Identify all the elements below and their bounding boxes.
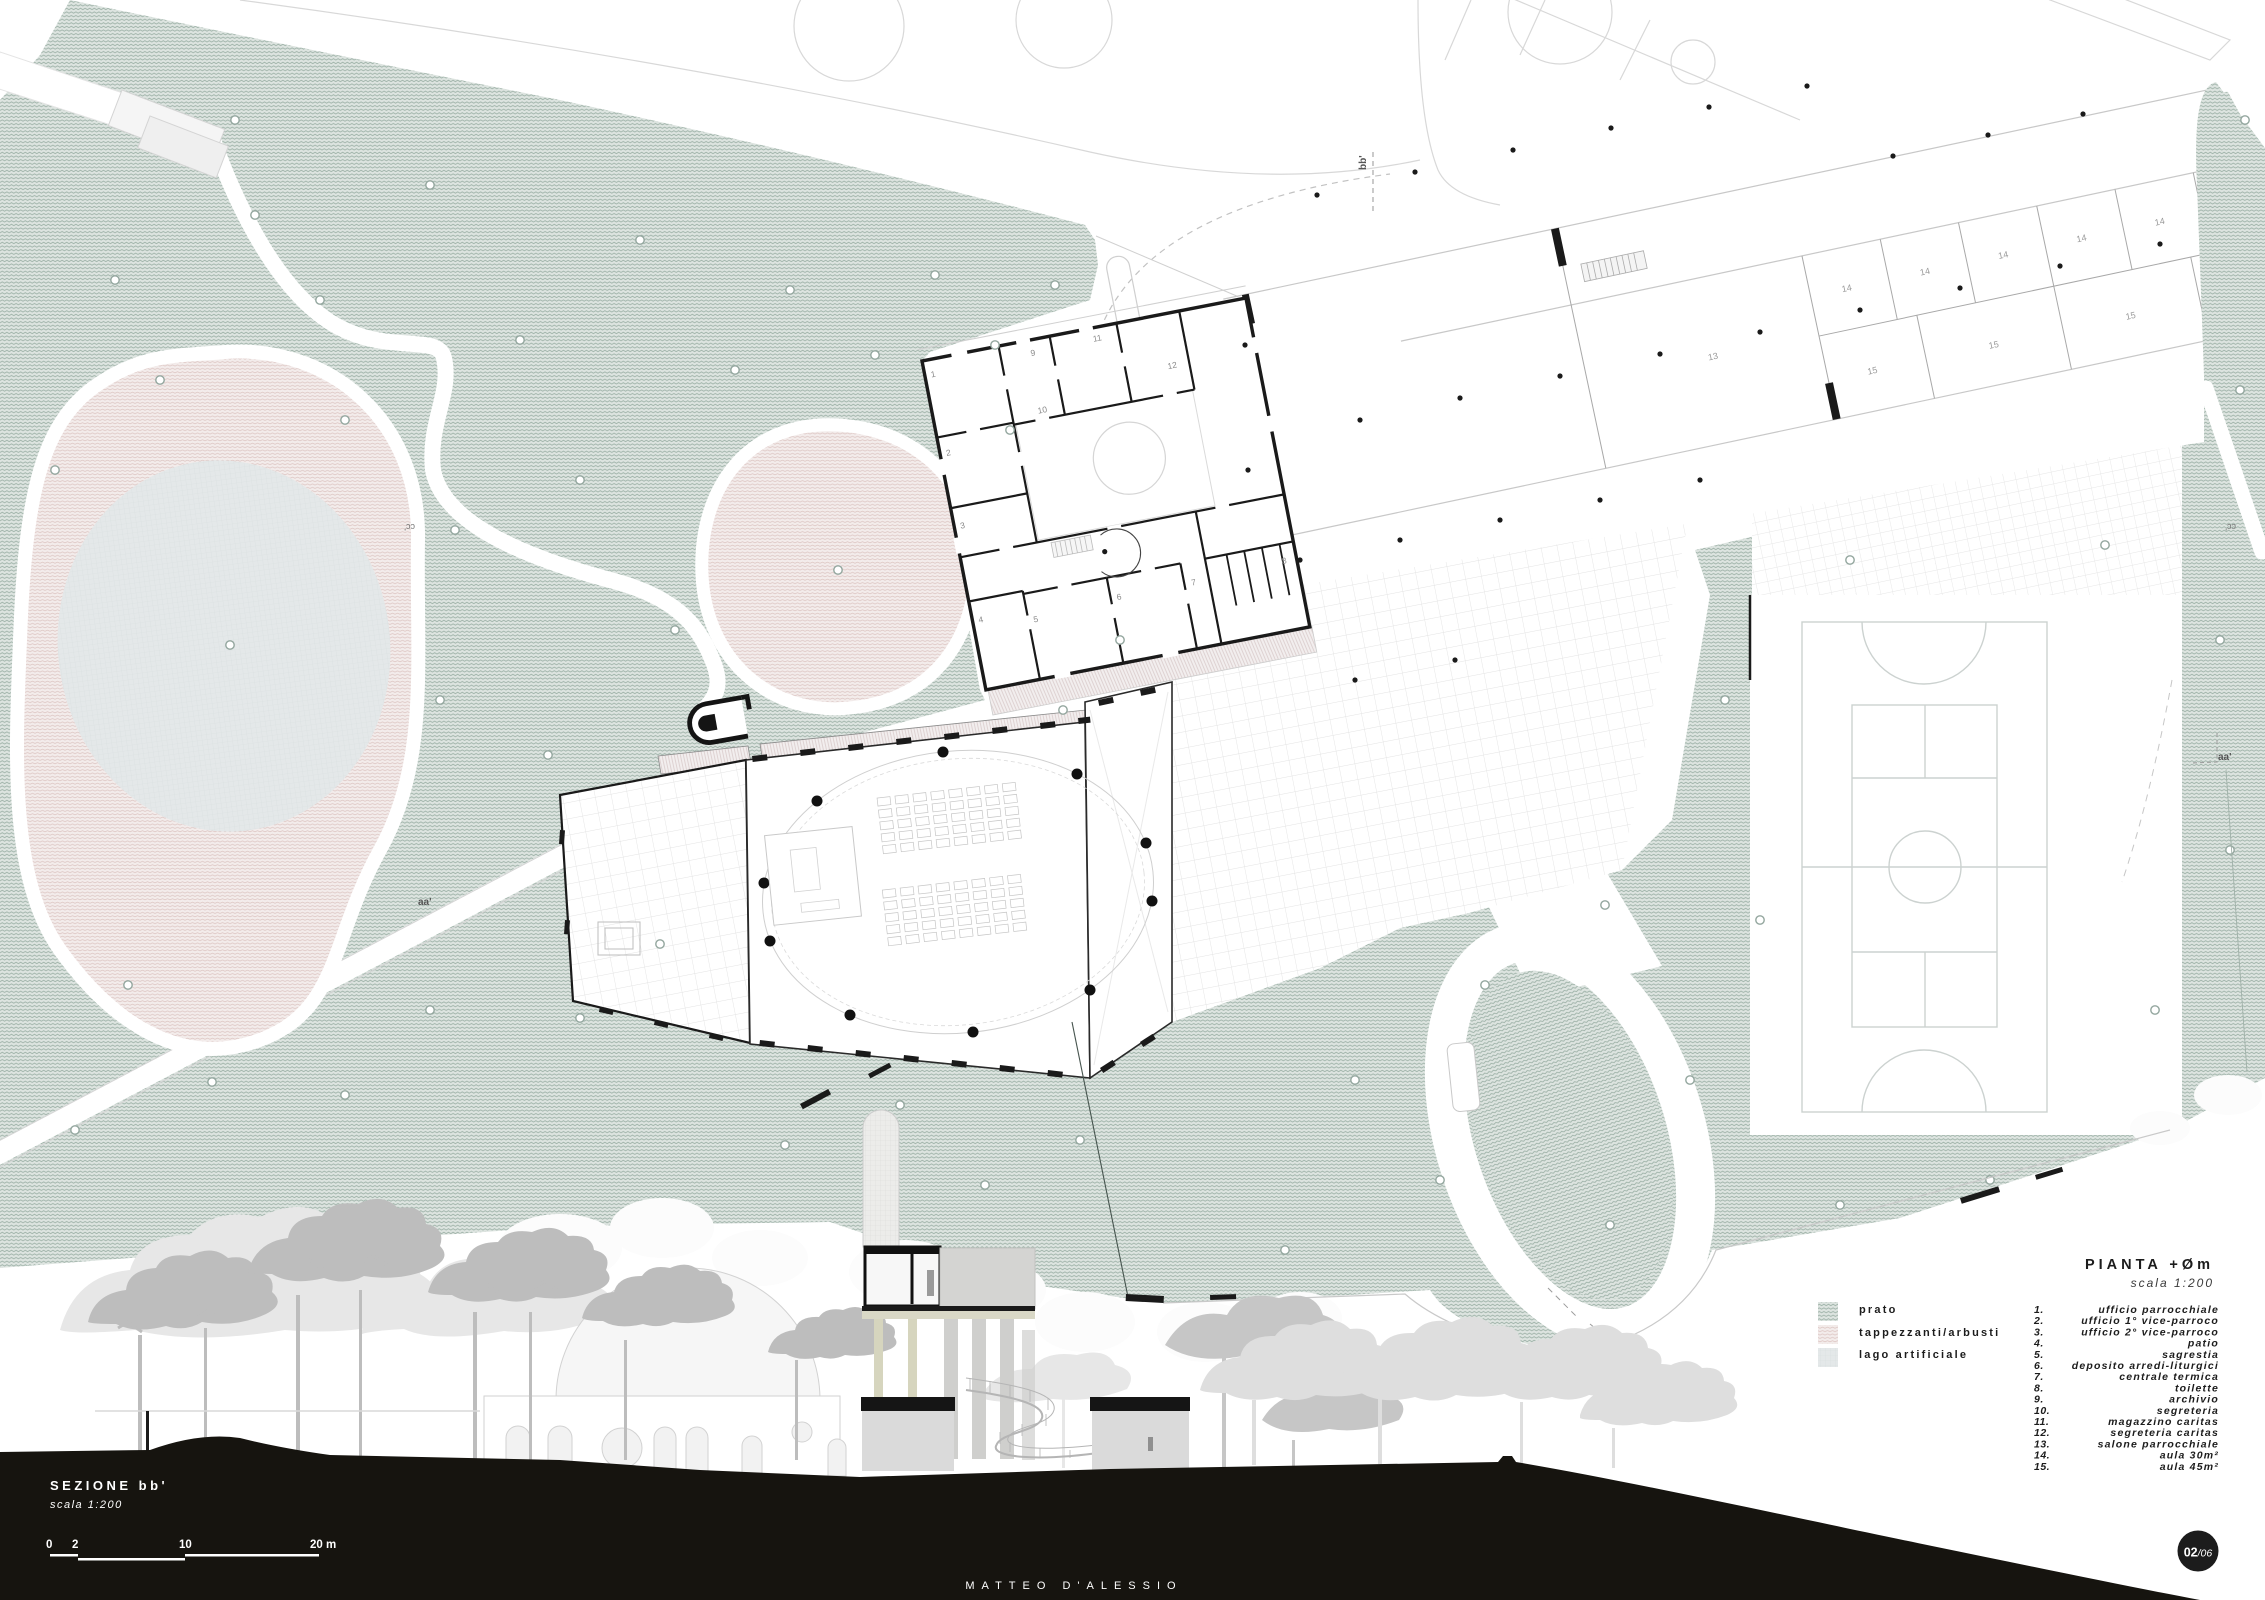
svg-text:PIANTA +Øm: PIANTA +Øm: [2085, 1257, 2214, 1273]
svg-text:02/06: 02/06: [2184, 1546, 2213, 1560]
svg-text:14: 14: [1841, 282, 1853, 294]
svg-text:salone parrocchiale: salone parrocchiale: [2098, 1438, 2219, 1450]
svg-text:6.: 6.: [2034, 1360, 2044, 1372]
svg-text:1.: 1.: [2034, 1304, 2044, 1316]
svg-text:15.: 15.: [2034, 1461, 2050, 1473]
svg-text:bb': bb': [1358, 155, 1369, 170]
svg-text:11.: 11.: [2034, 1416, 2049, 1428]
svg-text:10.: 10.: [2034, 1405, 2050, 1417]
svg-text:13.: 13.: [2034, 1438, 2050, 1450]
svg-text:3.: 3.: [2034, 1326, 2044, 1338]
svg-text:15: 15: [1866, 365, 1878, 377]
svg-text:lago artificiale: lago artificiale: [1859, 1349, 1968, 1361]
svg-text:patio: patio: [2187, 1338, 2219, 1350]
svg-text:centrale termica: centrale termica: [2119, 1371, 2219, 1383]
svg-text:aula 45m²: aula 45m²: [2160, 1461, 2219, 1473]
svg-text:ufficio 1° vice-parroco: ufficio 1° vice-parroco: [2081, 1315, 2219, 1327]
svg-text:aa': aa': [418, 897, 432, 908]
svg-text:5.: 5.: [2034, 1349, 2044, 1361]
svg-text:scala 1:200: scala 1:200: [50, 1499, 123, 1511]
svg-text:10: 10: [179, 1539, 192, 1551]
svg-text:14: 14: [2154, 216, 2166, 228]
svg-text:cc': cc': [404, 522, 415, 532]
svg-text:scala 1:200: scala 1:200: [2131, 1276, 2214, 1290]
svg-text:segreteria: segreteria: [2157, 1405, 2219, 1417]
svg-text:cc': cc': [2225, 522, 2236, 532]
svg-text:13: 13: [1707, 351, 1719, 363]
svg-text:0: 0: [46, 1539, 52, 1551]
svg-text:4.: 4.: [2033, 1338, 2044, 1350]
svg-text:prato: prato: [1859, 1304, 1898, 1316]
svg-text:SEZIONE bb': SEZIONE bb': [50, 1478, 168, 1493]
svg-text:MATTEO D'ALESSIO: MATTEO D'ALESSIO: [965, 1580, 1182, 1592]
svg-text:2.: 2.: [2033, 1315, 2044, 1327]
svg-text:7.: 7.: [2034, 1371, 2044, 1383]
svg-text:14.: 14.: [2034, 1450, 2050, 1462]
svg-text:8.: 8.: [2034, 1382, 2044, 1394]
svg-text:ufficio 2° vice-parroco: ufficio 2° vice-parroco: [2081, 1326, 2219, 1338]
svg-text:15: 15: [1988, 339, 2000, 351]
svg-text:aa': aa': [2218, 752, 2232, 763]
svg-text:deposito arredi-liturgici: deposito arredi-liturgici: [2072, 1360, 2219, 1372]
svg-text:14: 14: [2076, 232, 2088, 244]
svg-text:20 m: 20 m: [310, 1539, 336, 1551]
svg-text:14: 14: [1919, 266, 1931, 278]
svg-text:tappezzanti/arbusti: tappezzanti/arbusti: [1859, 1327, 2000, 1339]
svg-text:15: 15: [2125, 310, 2137, 322]
svg-text:9.: 9.: [2034, 1394, 2044, 1406]
svg-text:magazzino caritas: magazzino caritas: [2108, 1416, 2219, 1428]
svg-text:12.: 12.: [2034, 1427, 2050, 1439]
svg-text:aula 30m²: aula 30m²: [2160, 1450, 2219, 1462]
svg-text:toilette: toilette: [2175, 1382, 2219, 1394]
svg-text:sagrestia: sagrestia: [2162, 1349, 2219, 1361]
svg-text:segreteria caritas: segreteria caritas: [2110, 1427, 2219, 1439]
svg-text:14: 14: [1997, 249, 2009, 261]
svg-text:ufficio parrocchiale: ufficio parrocchiale: [2098, 1304, 2219, 1316]
svg-text:archivio: archivio: [2169, 1394, 2219, 1406]
svg-text:2: 2: [72, 1539, 78, 1551]
